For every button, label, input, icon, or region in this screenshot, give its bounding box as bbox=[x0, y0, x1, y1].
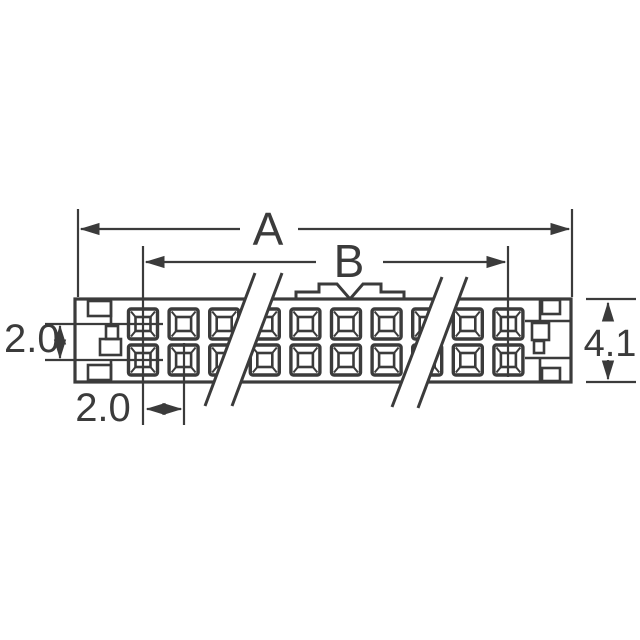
connector-dimension-drawing: A B 2.0 2.0 4.1 bbox=[0, 0, 640, 640]
contact-cavity bbox=[453, 309, 482, 339]
contact-cavity bbox=[332, 345, 361, 375]
dim-label-col-pitch: 2.0 bbox=[75, 386, 131, 430]
dim-label-row-pitch: 2.0 bbox=[4, 317, 60, 361]
contact-cavity bbox=[453, 345, 482, 375]
contact-cavity bbox=[372, 309, 401, 339]
drawing-canvas: A B 2.0 2.0 4.1 bbox=[0, 0, 640, 640]
dim-label-a: A bbox=[253, 203, 284, 255]
contact-cavity bbox=[332, 309, 361, 339]
dim-label-body-height: 4.1 bbox=[584, 323, 637, 365]
contact-cavity bbox=[291, 309, 320, 339]
contact-cavity bbox=[291, 345, 320, 375]
contact-cavity bbox=[372, 345, 401, 375]
contact-cavity bbox=[169, 309, 198, 339]
dim-label-b: B bbox=[334, 235, 365, 287]
